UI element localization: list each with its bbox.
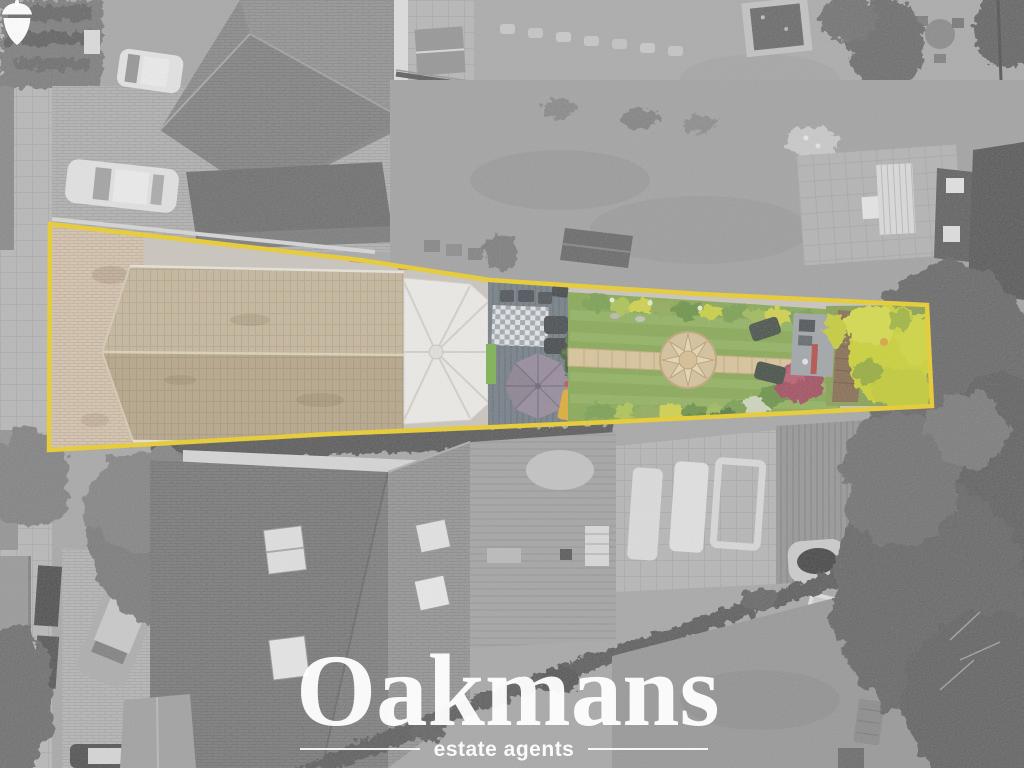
photo-scene [0, 0, 1024, 768]
photo-grain [0, 0, 1024, 768]
aerial-property-photo: Oakmans estate agents [0, 0, 1024, 768]
